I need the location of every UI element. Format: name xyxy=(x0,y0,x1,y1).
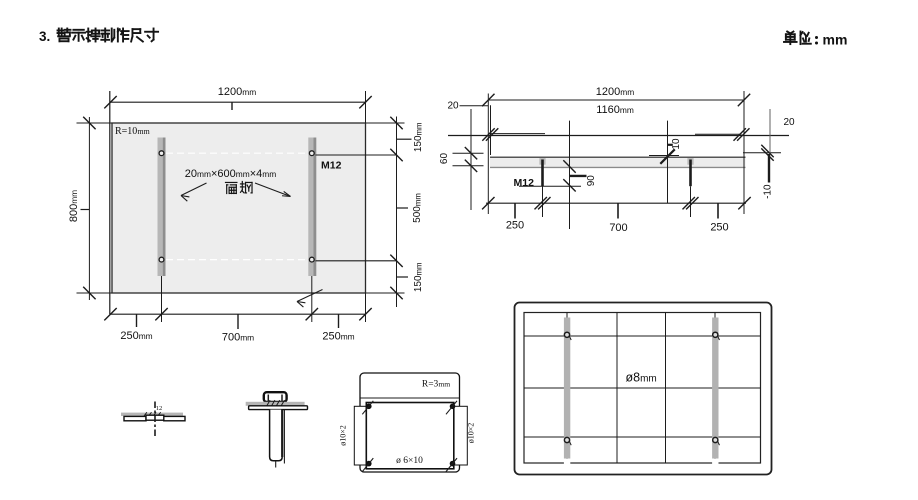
svg-text:1200mm: 1200mm xyxy=(596,86,634,98)
svg-text:150mm: 150mm xyxy=(413,262,424,292)
svg-text:250: 250 xyxy=(506,220,524,232)
svg-text:M12: M12 xyxy=(321,160,342,172)
svg-text:mm: mm xyxy=(823,32,848,48)
svg-text:10: 10 xyxy=(671,138,682,150)
svg-text:20: 20 xyxy=(448,101,460,112)
svg-text:150mm: 150mm xyxy=(413,122,424,152)
svg-text:-10: -10 xyxy=(763,184,774,199)
svg-text:ø8mm: ø8mm xyxy=(626,371,657,385)
svg-text:90: 90 xyxy=(586,175,597,187)
svg-text:800mm: 800mm xyxy=(68,190,80,222)
svg-text:ø10×2: ø10×2 xyxy=(339,425,348,446)
svg-text:12: 12 xyxy=(156,405,163,412)
svg-text:250: 250 xyxy=(710,222,728,234)
svg-text:ø 6×10: ø 6×10 xyxy=(396,456,423,466)
svg-text:60: 60 xyxy=(439,153,450,165)
svg-text:M12: M12 xyxy=(514,177,535,189)
svg-text:1200mm: 1200mm xyxy=(218,86,256,98)
svg-text:250mm: 250mm xyxy=(120,330,152,342)
svg-text:ø10×2: ø10×2 xyxy=(466,423,475,444)
svg-text:R=3mm: R=3mm xyxy=(422,380,450,390)
svg-text:R=10mm: R=10mm xyxy=(115,126,151,137)
svg-text:250mm: 250mm xyxy=(322,331,354,343)
svg-text:1160mm: 1160mm xyxy=(596,104,634,116)
svg-text:20: 20 xyxy=(784,117,796,128)
svg-text:20mm×600mm×4mm: 20mm×600mm×4mm xyxy=(185,168,276,180)
svg-text:700mm: 700mm xyxy=(222,332,254,344)
svg-text:500mm: 500mm xyxy=(412,193,423,223)
svg-text:700: 700 xyxy=(609,222,627,234)
svg-text:3.: 3. xyxy=(39,29,50,44)
